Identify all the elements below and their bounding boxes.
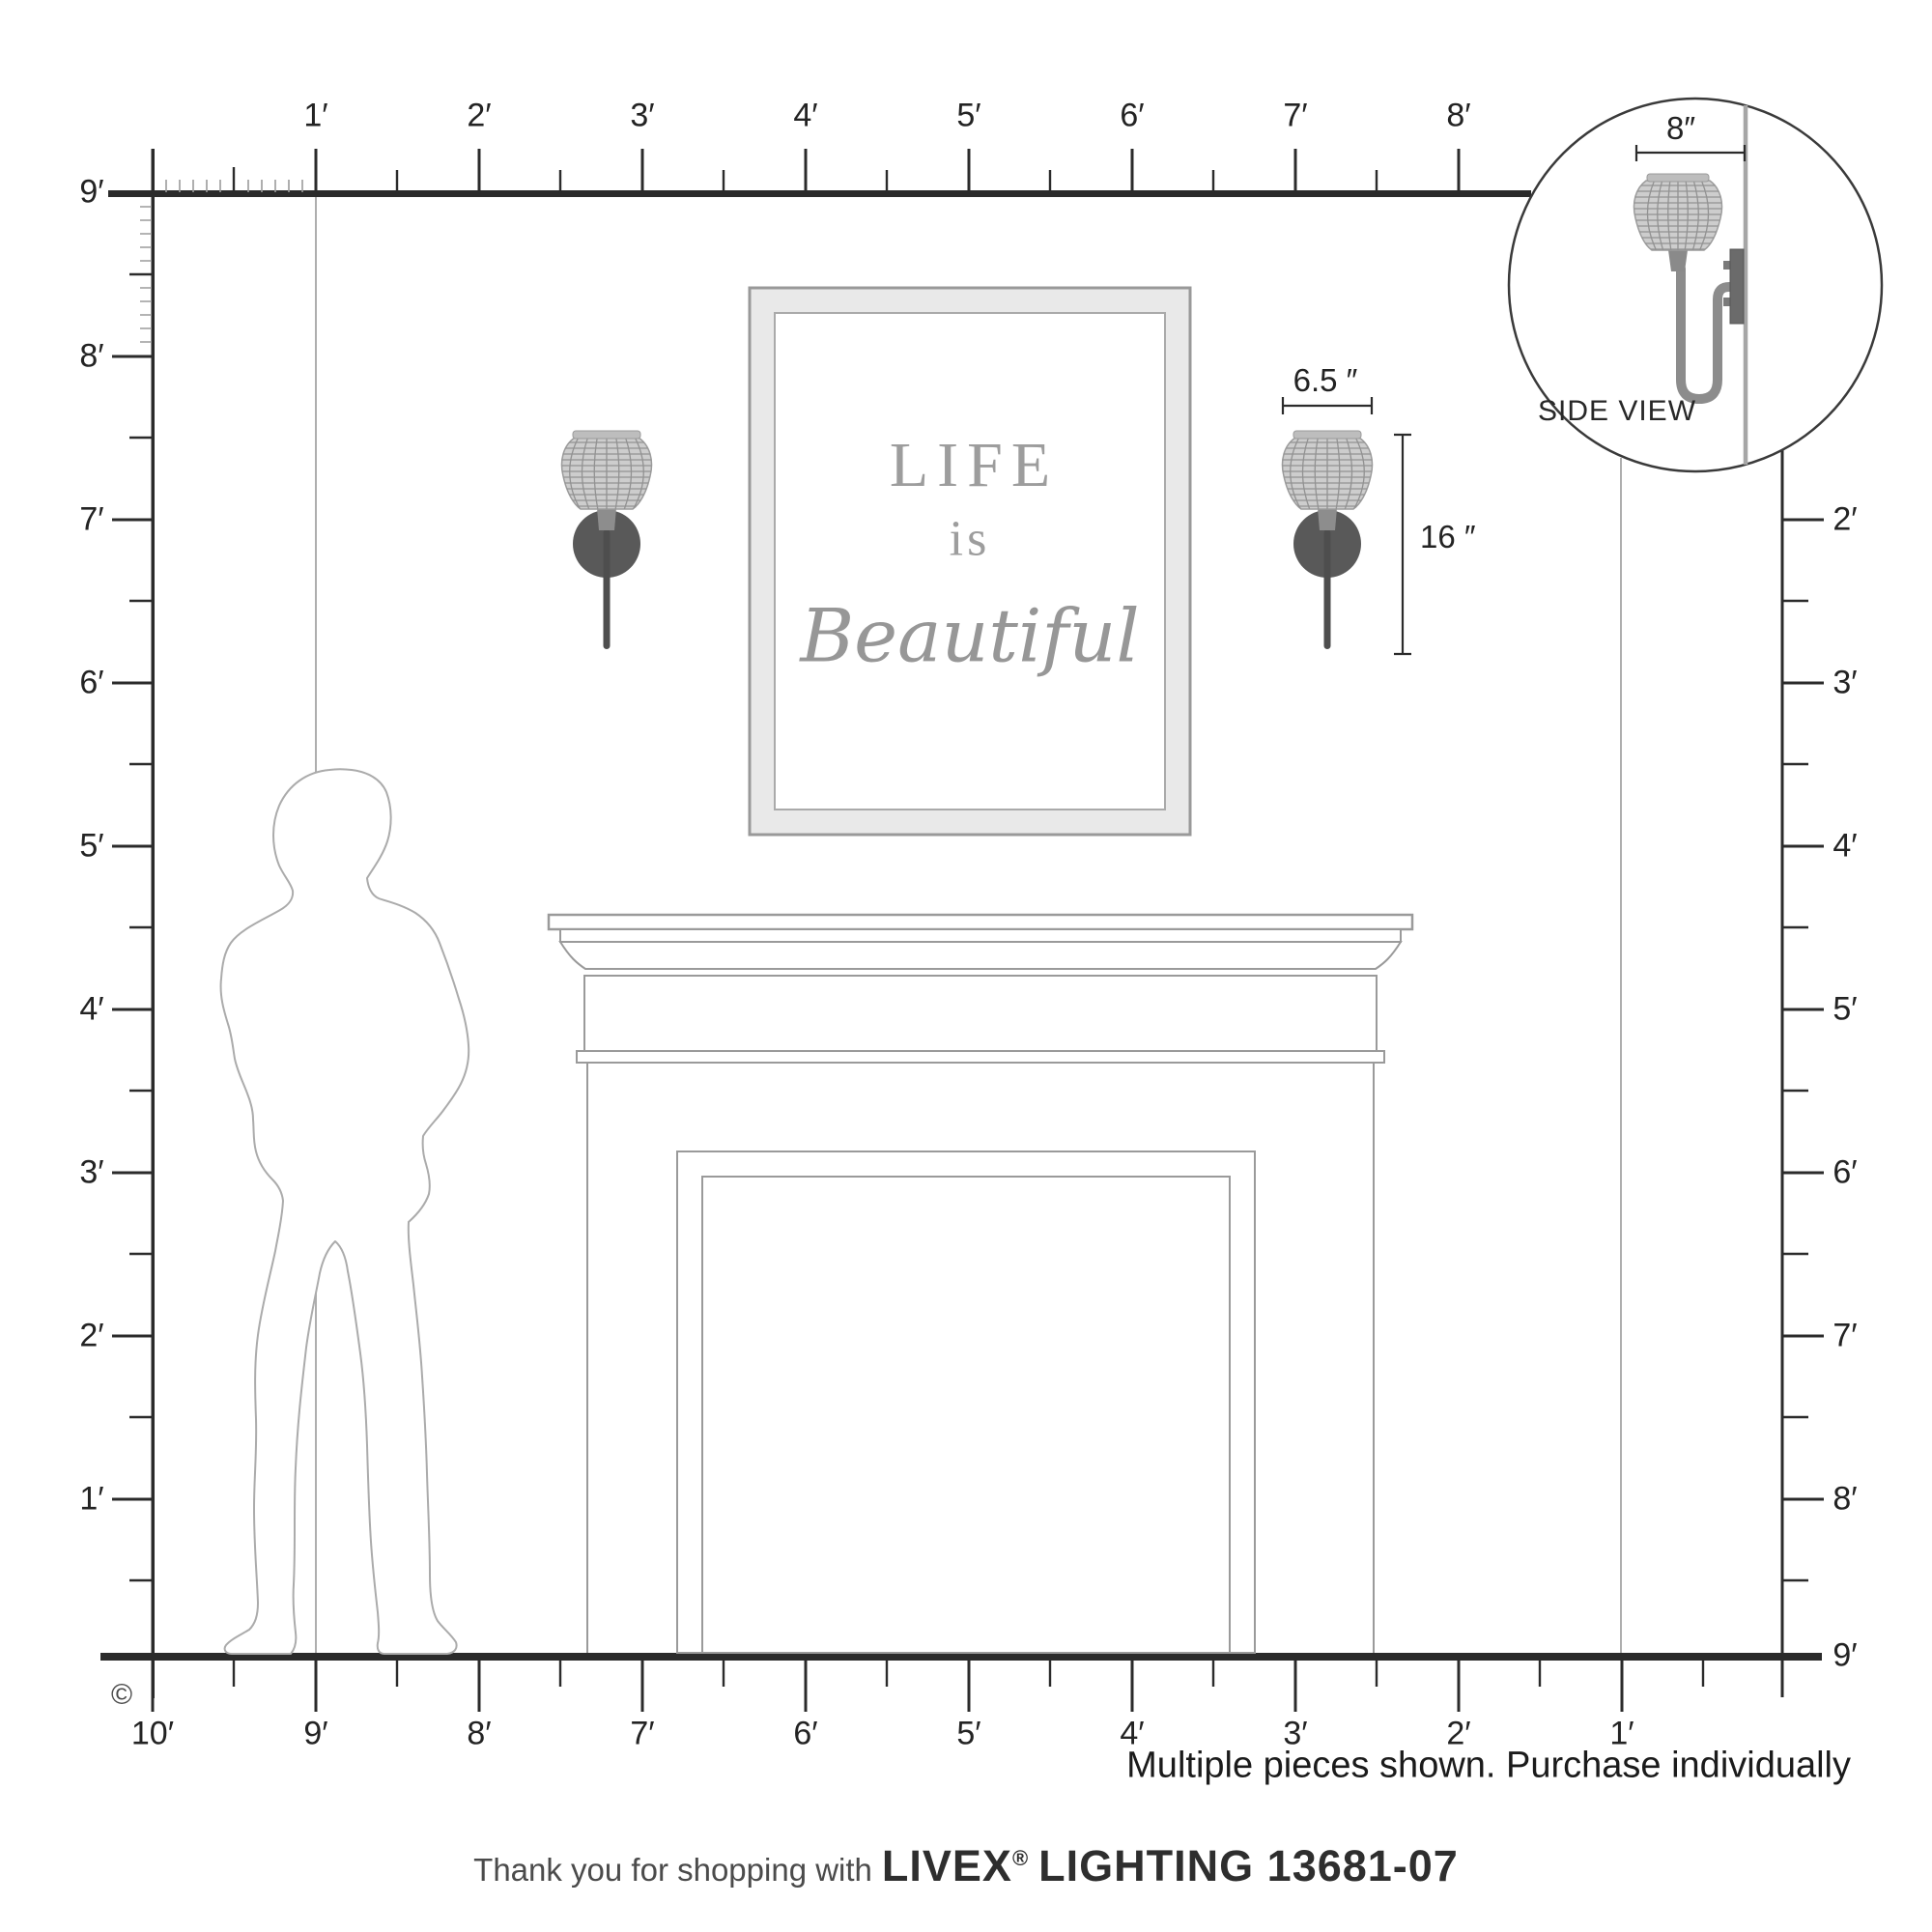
bottom-ruler-label-5ft: 5′ — [956, 1716, 980, 1753]
width-dimension-label: 6.5 ″ — [1293, 362, 1358, 399]
wall-sconce-left — [560, 431, 653, 649]
right-ruler-label-3ft: 3′ — [1833, 665, 1857, 702]
registered-trademark-icon: ® — [1012, 1846, 1029, 1870]
wall-sconce-right — [1281, 431, 1374, 649]
purchase-note: Multiple pieces shown. Purchase individu… — [1126, 1746, 1851, 1787]
right-ruler-label-5ft: 5′ — [1833, 991, 1857, 1029]
left-ruler-label-4ft: 4′ — [79, 991, 103, 1029]
top-ruler-label-8ft: 8′ — [1446, 98, 1470, 135]
left-ruler-label-6ft: 6′ — [79, 665, 103, 702]
right-ruler-label-6ft: 6′ — [1833, 1154, 1857, 1192]
right-ruler — [1781, 447, 1825, 1697]
right-ruler-label-2ft: 2′ — [1833, 501, 1857, 539]
left-ruler-label-3ft: 3′ — [79, 1154, 103, 1192]
bottom-ruler-label-10ft: 10′ — [131, 1716, 174, 1753]
artwork-word-life: LIFE — [881, 429, 1059, 502]
left-ruler-label-5ft: 5′ — [79, 828, 103, 866]
left-ruler-label-2ft: 2′ — [79, 1318, 103, 1355]
top-ruler-label-1ft: 1′ — [303, 98, 327, 135]
fireplace — [549, 915, 1412, 1653]
bottom-ruler-label-8ft: 8′ — [467, 1716, 491, 1753]
right-ruler-label-9ft: 9′ — [1833, 1637, 1857, 1675]
top-ruler — [108, 149, 1531, 197]
left-ruler-label-1ft: 1′ — [79, 1481, 103, 1519]
right-ruler-label-7ft: 7′ — [1833, 1318, 1857, 1355]
bottom-ruler-label-9ft: 9′ — [303, 1716, 327, 1753]
height-dimension-label: 16 ″ — [1420, 519, 1476, 555]
footer-brand-name: LIVEX® — [882, 1841, 1029, 1891]
left-ruler-label-9ft: 9′ — [79, 174, 103, 212]
right-ruler-label-8ft: 8′ — [1833, 1481, 1857, 1519]
top-ruler-label-7ft: 7′ — [1283, 98, 1307, 135]
sconce-wall-plate-side — [1730, 249, 1744, 324]
bottom-ruler — [100, 1653, 1822, 1712]
footer-product-number: LIGHTING 13681-07 — [1038, 1841, 1459, 1891]
bottom-ruler-label-6ft: 6′ — [793, 1716, 817, 1753]
top-ruler-label-2ft: 2′ — [467, 98, 491, 135]
top-ruler-label-6ft: 6′ — [1120, 98, 1144, 135]
dimension-diagram — [0, 0, 1932, 1932]
top-ruler-label-3ft: 3′ — [630, 98, 654, 135]
artwork-word-is: is — [950, 511, 991, 568]
copyright-mark: © — [111, 1679, 132, 1712]
footer-thanks-text: Thank you for shopping with — [473, 1852, 872, 1889]
top-ruler-label-5ft: 5′ — [956, 98, 980, 135]
left-ruler — [112, 149, 155, 1698]
sconce-socket-side — [1668, 250, 1688, 271]
top-ruler-label-4ft: 4′ — [793, 98, 817, 135]
left-ruler-label-7ft: 7′ — [79, 501, 103, 539]
side-view-caption: SIDE VIEW — [1538, 395, 1696, 428]
scene-graphics — [0, 0, 1932, 1932]
footer-branding: Thank you for shopping with LIVEX® LIGHT… — [473, 1841, 1459, 1891]
right-ruler-label-4ft: 4′ — [1833, 828, 1857, 866]
left-ruler-label-8ft: 8′ — [79, 338, 103, 376]
person-silhouette — [221, 769, 469, 1654]
bottom-ruler-label-7ft: 7′ — [630, 1716, 654, 1753]
depth-dimension-label: 8″ — [1666, 110, 1695, 147]
artwork-word-beautiful: Beautiful — [800, 593, 1139, 679]
